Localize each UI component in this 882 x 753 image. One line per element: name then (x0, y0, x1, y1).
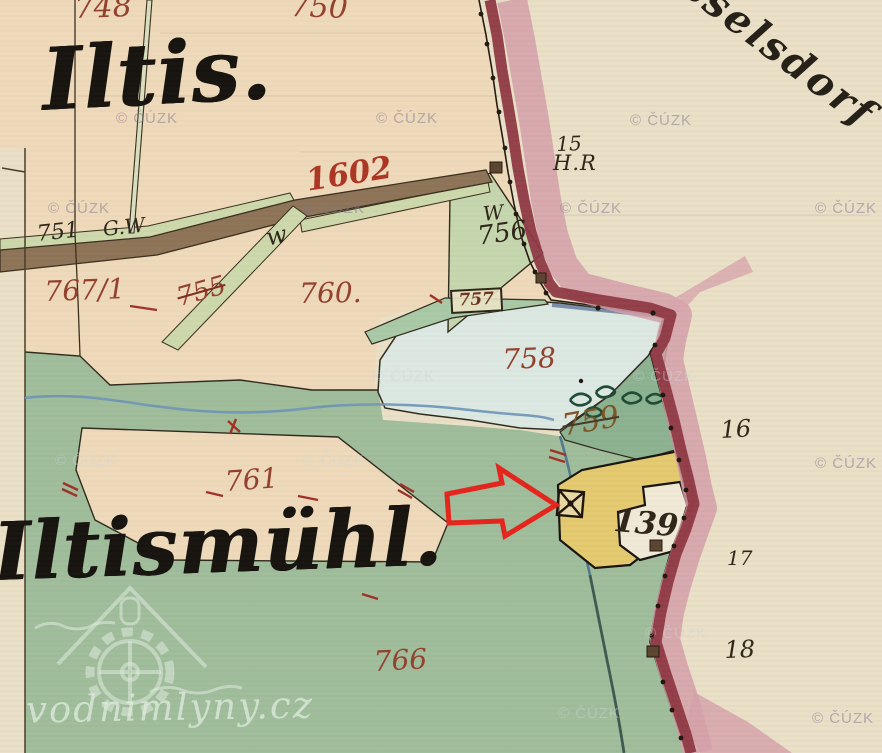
cadastral-map-drawing (0, 0, 882, 753)
pond-dot (579, 379, 583, 383)
mill-wheel-icon (557, 490, 584, 517)
map-canvas[interactable]: Iltis. Iltismühl. sselsdorf 748 750 1602… (0, 0, 882, 753)
